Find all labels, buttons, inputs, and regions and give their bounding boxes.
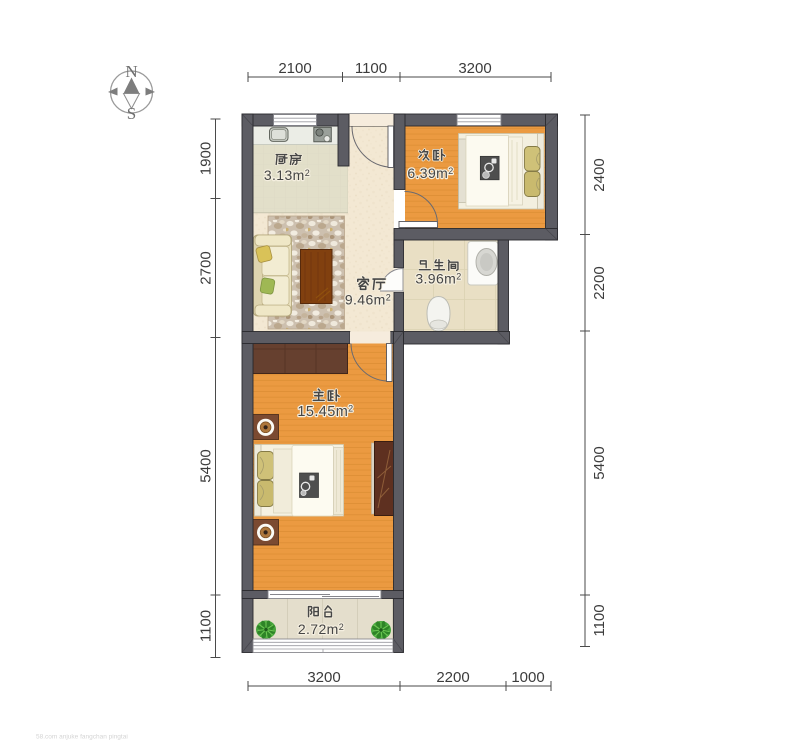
svg-text:1100: 1100: [355, 60, 387, 77]
svg-text:5400: 5400: [198, 449, 215, 482]
svg-text:3200: 3200: [458, 60, 491, 77]
svg-text:6.39m2: 6.39m2: [407, 165, 453, 181]
svg-text:1000: 1000: [511, 669, 544, 686]
svg-text:1100: 1100: [591, 604, 608, 636]
svg-text:2200: 2200: [591, 266, 608, 299]
svg-text:S: S: [127, 104, 136, 123]
svg-text:3.96m2: 3.96m2: [415, 271, 461, 287]
svg-text:3.13m2: 3.13m2: [264, 167, 310, 183]
svg-text:2200: 2200: [436, 669, 469, 686]
svg-text:58.com anjuke fangchan pingtai: 58.com anjuke fangchan pingtai: [36, 734, 128, 740]
svg-text:1900: 1900: [198, 142, 215, 175]
svg-text:2100: 2100: [278, 60, 311, 77]
svg-text:N: N: [125, 62, 137, 81]
svg-text:1100: 1100: [198, 610, 215, 642]
svg-text:9.46m2: 9.46m2: [345, 292, 391, 308]
svg-text:2.72m2: 2.72m2: [298, 621, 344, 637]
svg-text:2700: 2700: [198, 251, 215, 284]
svg-text:5400: 5400: [591, 446, 608, 479]
svg-text:15.45m2: 15.45m2: [297, 404, 353, 421]
svg-text:3200: 3200: [307, 669, 340, 686]
svg-text:2400: 2400: [591, 158, 608, 191]
